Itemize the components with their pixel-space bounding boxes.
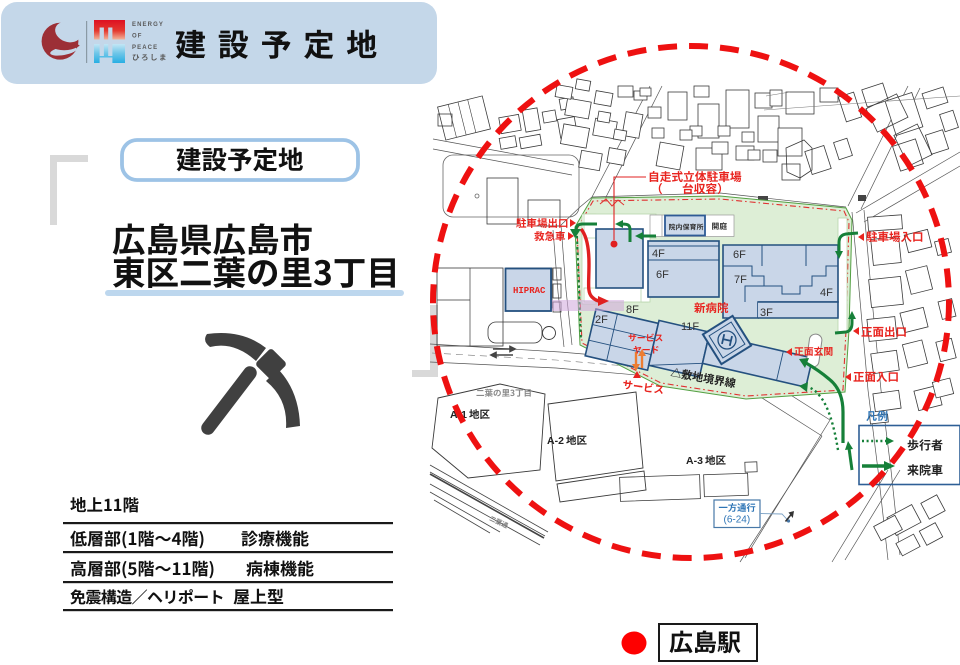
svg-text:(6-24): (6-24) bbox=[724, 515, 751, 526]
svg-text:A-3: A-3 bbox=[686, 455, 703, 467]
svg-text:OF: OF bbox=[132, 34, 143, 40]
svg-text:3F: 3F bbox=[760, 307, 773, 319]
svg-text:7F: 7F bbox=[734, 274, 747, 286]
svg-text:6F: 6F bbox=[733, 249, 746, 261]
svg-text:11F: 11F bbox=[681, 321, 699, 333]
svg-text:4F: 4F bbox=[652, 248, 665, 260]
svg-text:HIPRAC: HIPRAC bbox=[513, 286, 546, 296]
svg-text:2F: 2F bbox=[595, 314, 608, 326]
svg-text:ENERGY: ENERGY bbox=[132, 22, 164, 28]
svg-text:6F: 6F bbox=[656, 269, 669, 281]
svg-text:4F: 4F bbox=[820, 287, 833, 299]
svg-text:PEACE: PEACE bbox=[132, 45, 158, 51]
svg-text:A-2: A-2 bbox=[547, 435, 564, 447]
svg-text:8F: 8F bbox=[626, 304, 639, 316]
